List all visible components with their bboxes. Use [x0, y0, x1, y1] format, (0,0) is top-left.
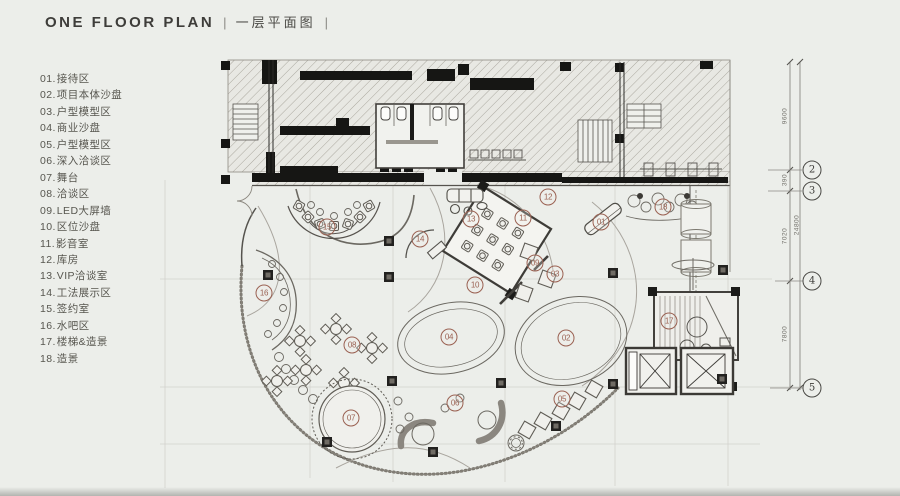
title-separator-right: |: [325, 15, 328, 30]
legend-item-number: 14.: [40, 287, 56, 299]
legend-item-number: 08.: [40, 188, 56, 200]
legend-item: 05.户型模型区: [40, 137, 122, 153]
title-chinese: 一层平面图: [236, 12, 316, 31]
upper-wall-band: [221, 60, 730, 186]
legend-item: 10.区位沙盘: [40, 219, 122, 235]
legend-item: 14.工法展示区: [40, 285, 122, 301]
legend-item-label: VIP洽谈室: [57, 270, 108, 282]
reception-desk: [583, 201, 623, 236]
legend-item: 15.签约室: [40, 301, 122, 317]
legend-item-number: 06.: [40, 155, 56, 167]
legend-item: 16.水吧区: [40, 318, 122, 334]
legend-item: 08.洽谈区: [40, 186, 122, 202]
curved-facade: [237, 186, 618, 474]
landscape-strip: [626, 186, 730, 292]
title-english: ONE FLOOR PLAN: [45, 14, 214, 31]
lounge-seating: [394, 394, 524, 451]
legend-item-number: 13.: [40, 270, 56, 282]
method-display: [406, 230, 446, 259]
legend-item-number: 15.: [40, 303, 56, 315]
legend-item-label: 户型模型区: [57, 139, 112, 151]
legend-item-number: 18.: [40, 353, 56, 365]
legend-item: 03.户型模型区: [40, 104, 122, 120]
legend-item-label: 水吧区: [57, 320, 90, 332]
legend-item-label: 接待区: [57, 73, 90, 85]
legend-item: 18.造景: [40, 351, 122, 367]
floor-plan-page: ONE FLOOR PLAN | 一层平面图 | 01.接待区 02.项目本体沙…: [0, 0, 900, 496]
legend-item-label: 项目本体沙盘: [57, 89, 122, 101]
legend-item: 17.楼梯&造景: [40, 334, 122, 350]
legend-item-label: 签约室: [57, 303, 90, 315]
legend-item-label: 工法展示区: [57, 287, 112, 299]
legend-item-label: 库房: [57, 254, 79, 266]
legend-item-number: 17.: [40, 336, 56, 348]
legend-item-number: 12.: [40, 254, 56, 266]
legend-item: 11.影音室: [40, 236, 122, 252]
legend-item-number: 07.: [40, 172, 56, 184]
legend-item: 07.舞台: [40, 170, 122, 186]
legend-item-label: LED大屏墙: [57, 205, 111, 217]
legend-list: 01.接待区 02.项目本体沙盘 03.户型模型区 04.商业沙盘 05.户型模…: [40, 71, 122, 367]
legend-item-label: 楼梯&造景: [57, 336, 108, 348]
page-bottom-shadow: [0, 487, 900, 496]
legend-item-label: 区位沙盘: [57, 221, 101, 233]
legend-item: 13.VIP洽谈室: [40, 268, 122, 284]
legend-item-number: 05.: [40, 139, 56, 151]
restroom: [376, 104, 464, 168]
dimension-lines: [768, 59, 803, 391]
legend-item: 12.库房: [40, 252, 122, 268]
legend-item-label: 户型模型区: [57, 106, 112, 118]
legend-item-label: 商业沙盘: [57, 122, 101, 134]
floor-plan-drawing: [0, 0, 900, 496]
sandbox-ellipses: [391, 282, 639, 399]
negotiation-tables: [262, 314, 388, 399]
legend-item-label: 造景: [57, 353, 79, 365]
legend-item: 04.商业沙盘: [40, 120, 122, 136]
legend-item-number: 01.: [40, 73, 56, 85]
legend-item-number: 03.: [40, 106, 56, 118]
stair-upper-left: [233, 104, 258, 140]
page-title: ONE FLOOR PLAN | 一层平面图 |: [45, 12, 328, 31]
legend-item-label: 舞台: [57, 172, 79, 184]
legend-item-label: 影音室: [56, 238, 89, 250]
legend-item-number: 04.: [40, 122, 56, 134]
legend-item: 02.项目本体沙盘: [40, 87, 122, 103]
legend-item-number: 10.: [40, 221, 56, 233]
legend-item-number: 02.: [40, 89, 56, 101]
legend-item-label: 洽谈区: [57, 188, 90, 200]
legend-item-label: 深入洽谈区: [57, 155, 112, 167]
legend-item: 09.LED大屏墙: [40, 203, 122, 219]
legend-item: 01.接待区: [40, 71, 122, 87]
feature-cylinder: [681, 190, 711, 296]
legend-item-number: 11.: [40, 238, 55, 250]
legend-item: 06.深入洽谈区: [40, 153, 122, 169]
title-separator-left: |: [223, 15, 226, 30]
legend-item-number: 09.: [40, 205, 56, 217]
legend-item-number: 16.: [40, 320, 56, 332]
